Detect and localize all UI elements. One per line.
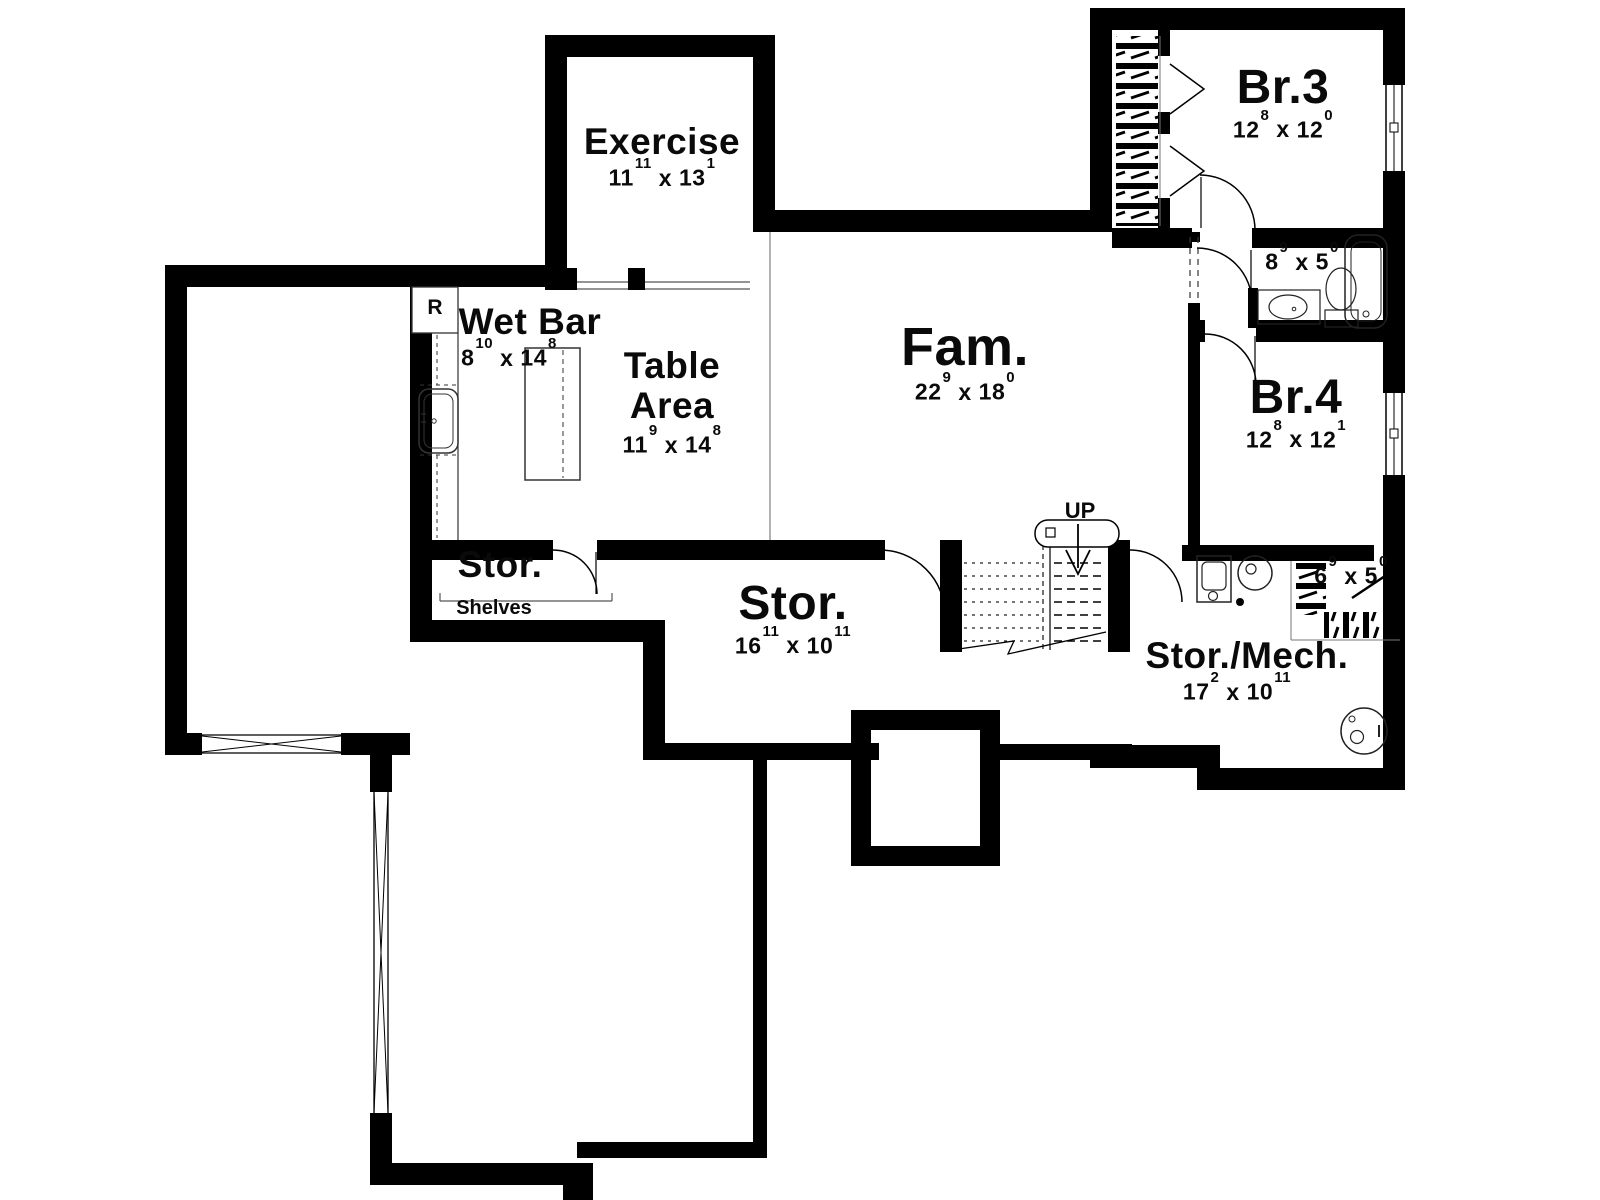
room-name: Stor./Mech.	[1146, 636, 1349, 676]
room-label-storage-mech: Stor./Mech. 172x1011	[1146, 636, 1349, 704]
room-dims: 119x148	[582, 432, 762, 457]
room-dims: 89x50	[1265, 249, 1339, 274]
room-name: Table Area	[582, 346, 762, 426]
room-label-exercise: Exercise 1111x131	[584, 122, 740, 190]
room-label-closet: 69x50	[1314, 560, 1388, 588]
room-dims: 1611x1011	[735, 633, 851, 658]
room-label-storage-main: Stor. 1611x1011	[735, 578, 851, 658]
room-dims: 69x50	[1314, 563, 1388, 588]
room-dims: 229x180	[901, 379, 1029, 404]
room-label-br4: Br.4 128x121	[1246, 372, 1346, 452]
room-dims: 172x1011	[1126, 679, 1349, 704]
floor-plan: Exercise 1111x131 Wet Bar 810x148 Table …	[0, 0, 1600, 1200]
room-name: Br.3	[1233, 62, 1333, 114]
room-label-br3: Br.3 128x120	[1233, 62, 1333, 142]
room-name: Br.4	[1246, 372, 1346, 424]
room-label-bath: 89x50	[1265, 246, 1339, 274]
room-name: Fam.	[901, 318, 1029, 376]
room-dims: 810x148	[417, 345, 602, 370]
room-dims: 128x121	[1246, 427, 1346, 452]
room-dims: 128x120	[1233, 117, 1333, 142]
room-label-table-area: Table Area 119x148	[582, 346, 762, 457]
room-labels: Exercise 1111x131 Wet Bar 810x148 Table …	[0, 0, 1600, 1200]
room-name: Stor.	[458, 545, 543, 585]
shelves-label: Shelves	[456, 598, 532, 620]
room-dims: 1111x131	[584, 165, 740, 190]
room-label-storage-small: Stor.	[458, 545, 543, 585]
room-name: Exercise	[584, 122, 740, 162]
room-label-family: Fam. 229x180	[901, 318, 1029, 405]
up-label: UP	[1065, 499, 1096, 523]
room-label-wet-bar: Wet Bar 810x148	[459, 302, 602, 370]
refrigerator-label: R	[427, 297, 442, 320]
